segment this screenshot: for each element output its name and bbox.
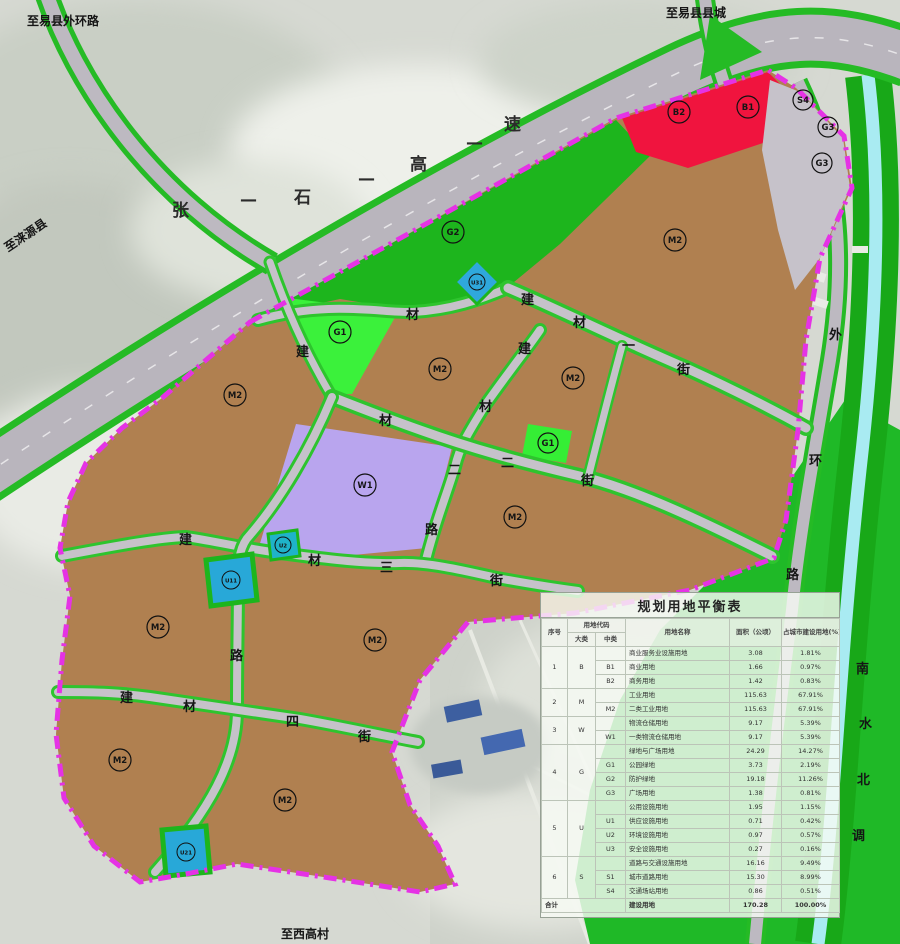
cell-mid: B2: [596, 675, 626, 689]
cell-ser: 1: [542, 647, 568, 689]
cell-pct: 0.57%: [782, 829, 840, 843]
street4-char: 建: [120, 690, 133, 706]
cell-pct: 14.27%: [782, 745, 840, 759]
highway-dash: —: [240, 190, 257, 210]
cell-mid: S4: [596, 885, 626, 899]
cell-name: 广场用地: [626, 787, 730, 801]
canal-name-char: 北: [857, 773, 870, 788]
road2-char: 二: [448, 463, 461, 478]
svg-text:U2: U2: [279, 544, 287, 550]
cell-name: 供应设施用地: [626, 815, 730, 829]
cell-name: 商务用地: [626, 675, 730, 689]
cell-name: 物流仓储用地: [626, 717, 730, 731]
cell-total-name: 建设用地: [626, 899, 730, 913]
cell-name: 交通场站用地: [626, 885, 730, 899]
road1-char: 材: [406, 307, 419, 323]
cell-area: 1.38: [730, 787, 782, 801]
table-row: 2 M 工业用地 115.63 67.91%: [542, 689, 840, 703]
street2-char: 街: [580, 473, 594, 489]
highway-name-char: 张: [172, 201, 190, 221]
cell-area: 1.95: [730, 801, 782, 815]
cell-major: B: [568, 647, 596, 689]
cell-area: 15.30: [730, 871, 782, 885]
edge-label-top-left: 至易县外环路: [27, 13, 100, 28]
canal-name-char: 调: [852, 829, 865, 844]
cell-major: W: [568, 717, 596, 745]
street4-char: 街: [357, 729, 371, 745]
cell-area: 0.71: [730, 815, 782, 829]
svg-text:B1: B1: [742, 103, 754, 113]
highway-name-char: 速: [504, 114, 521, 135]
street3-char: 建: [179, 532, 192, 548]
cell-pct: 0.83%: [782, 675, 840, 689]
col-header-code: 用地代码: [568, 619, 626, 633]
cell-total-area: 170.28: [730, 899, 782, 913]
cell-name: 绿地与广场用地: [626, 745, 730, 759]
svg-text:M2: M2: [151, 623, 165, 633]
cell-pct: 5.39%: [782, 731, 840, 745]
svg-text:G1: G1: [334, 328, 347, 338]
road2-char: 材: [479, 399, 492, 415]
cell-ser: 3: [542, 717, 568, 745]
cell-pct: 67.91%: [782, 703, 840, 717]
cell-pct: 0.51%: [782, 885, 840, 899]
cell-area: 9.17: [730, 731, 782, 745]
ring-road-char: 环: [809, 454, 822, 469]
cell-total-pct: 100.00%: [782, 899, 840, 913]
svg-text:U11: U11: [225, 579, 237, 585]
col-header-ser: 序号: [542, 619, 568, 647]
highway-dash: —: [466, 133, 483, 153]
svg-text:G1: G1: [542, 439, 555, 449]
cell-area: 24.29: [730, 745, 782, 759]
street2-char: 二: [501, 456, 514, 471]
cell-ser: 4: [542, 745, 568, 801]
svg-text:M2: M2: [368, 636, 382, 646]
street1-char: 材: [573, 315, 586, 331]
cell-pct: 0.81%: [782, 787, 840, 801]
ring-road-char: 外: [828, 327, 842, 343]
cell-mid: [596, 689, 626, 703]
cell-mid: W1: [596, 731, 626, 745]
cell-name: 商业用地: [626, 661, 730, 675]
cell-name: 防护绿地: [626, 773, 730, 787]
canal-name-char: 水: [859, 716, 873, 732]
table-row: 3 W 物流仓储用地 9.17 5.39%: [542, 717, 840, 731]
planning-map-page: B2 B1 S4 G3 G3 G2 U31 G1 G1 W1 M2 M2 M2 …: [0, 0, 900, 944]
street4-char: 材: [183, 699, 196, 715]
cell-area: 16.16: [730, 857, 782, 871]
cell-ser: 5: [542, 801, 568, 857]
cell-mid: [596, 647, 626, 661]
cell-major: G: [568, 745, 596, 801]
cell-name: 一类物流仓储用地: [626, 731, 730, 745]
street3-char: 街: [489, 573, 503, 589]
cell-area: 19.18: [730, 773, 782, 787]
nw-arm-char: 建: [296, 344, 309, 360]
cell-ser: 6: [542, 857, 568, 899]
cell-area: 1.66: [730, 661, 782, 675]
street1-char: 一: [622, 339, 635, 354]
cell-name: 公园绿地: [626, 759, 730, 773]
street1-char: 街: [676, 362, 690, 378]
blue-roof-facilities: [410, 697, 550, 793]
cell-mid: M2: [596, 703, 626, 717]
cell-ser: 2: [542, 689, 568, 717]
cell-mid: U1: [596, 815, 626, 829]
cell-pct: 0.42%: [782, 815, 840, 829]
col-header-name: 用地名称: [626, 619, 730, 647]
cell-area: 0.27: [730, 843, 782, 857]
highway-name-char: 石: [293, 188, 311, 208]
street1-char: 建: [521, 292, 534, 308]
cell-total-label: 合计: [542, 899, 626, 913]
cell-mid: U3: [596, 843, 626, 857]
cell-area: 0.86: [730, 885, 782, 899]
table-row: 4 G 绿地与广场用地 24.29 14.27%: [542, 745, 840, 759]
table-title: 规划用地平衡表: [541, 593, 839, 618]
table-row: 6 S 道路与交通设施用地 16.16 9.49%: [542, 857, 840, 871]
cell-pct: 5.39%: [782, 717, 840, 731]
svg-text:G3: G3: [816, 159, 829, 169]
street3-char: 材: [308, 553, 321, 569]
cell-pct: 2.19%: [782, 759, 840, 773]
cell-pct: 67.91%: [782, 689, 840, 703]
cell-mid: [596, 857, 626, 871]
cell-mid: S1: [596, 871, 626, 885]
cell-mid: G1: [596, 759, 626, 773]
svg-text:G3: G3: [822, 123, 835, 133]
table-header-row: 序号 用地代码 用地名称 面积（公顷） 占城市建设用地(%): [542, 619, 840, 633]
col-header-pct: 占城市建设用地(%): [782, 619, 840, 647]
cell-name: 环境设施用地: [626, 829, 730, 843]
svg-text:G2: G2: [447, 228, 460, 238]
cell-pct: 0.97%: [782, 661, 840, 675]
cell-major: U: [568, 801, 596, 857]
street3-char: 三: [380, 561, 393, 576]
cell-name: 安全设施用地: [626, 843, 730, 857]
svg-text:M2: M2: [278, 796, 292, 806]
svg-text:M2: M2: [566, 374, 580, 384]
svg-text:M2: M2: [228, 391, 242, 401]
land-use-balance-table: 规划用地平衡表 序号 用地代码 用地名称 面积（公顷） 占城市建设用地(%) 大…: [540, 592, 840, 918]
svg-text:S4: S4: [797, 96, 809, 106]
svg-text:M2: M2: [668, 236, 682, 246]
highway-dash: —: [358, 169, 375, 189]
road2-char: 路: [425, 522, 439, 538]
cell-name: 城市道路用地: [626, 871, 730, 885]
cell-pct: 1.81%: [782, 647, 840, 661]
cell-area: 3.73: [730, 759, 782, 773]
svg-text:U21: U21: [180, 851, 192, 857]
west-road-char: 路: [230, 648, 244, 664]
cell-name: 公用设施用地: [626, 801, 730, 815]
cell-name: 二类工业用地: [626, 703, 730, 717]
cell-mid: G2: [596, 773, 626, 787]
svg-text:M2: M2: [508, 513, 522, 523]
cell-pct: 9.49%: [782, 857, 840, 871]
cell-pct: 11.26%: [782, 773, 840, 787]
cell-major: S: [568, 857, 596, 899]
cell-area: 9.17: [730, 717, 782, 731]
col-header-mid: 中类: [596, 633, 626, 647]
cell-mid: B1: [596, 661, 626, 675]
road2-char: 建: [518, 341, 531, 357]
svg-text:B2: B2: [673, 108, 685, 118]
cell-pct: 8.99%: [782, 871, 840, 885]
cell-mid: [596, 745, 626, 759]
svg-text:W1: W1: [357, 481, 372, 491]
svg-text:M2: M2: [433, 365, 447, 375]
cell-pct: 1.15%: [782, 801, 840, 815]
cell-pct: 0.16%: [782, 843, 840, 857]
canal-name-char: 南: [856, 661, 869, 677]
cell-area: 115.63: [730, 703, 782, 717]
cell-mid: U2: [596, 829, 626, 843]
col-header-area: 面积（公顷）: [730, 619, 782, 647]
cell-mid: [596, 717, 626, 731]
svg-text:U31: U31: [471, 281, 483, 287]
street4-char: 四: [286, 715, 299, 730]
cell-mid: G3: [596, 787, 626, 801]
balance-table: 序号 用地代码 用地名称 面积（公顷） 占城市建设用地(%) 大类 中类 1 B…: [541, 618, 840, 913]
cell-major: M: [568, 689, 596, 717]
cell-area: 1.42: [730, 675, 782, 689]
cell-area: 0.97: [730, 829, 782, 843]
cell-name: 道路与交通设施用地: [626, 857, 730, 871]
table-total-row: 合计 建设用地 170.28 100.00%: [542, 899, 840, 913]
cell-name: 工业用地: [626, 689, 730, 703]
highway-name-char: 高: [410, 154, 427, 175]
cell-name: 商业服务业设施用地: [626, 647, 730, 661]
cell-area: 3.08: [730, 647, 782, 661]
table-row: 5 U 公用设施用地 1.95 1.15%: [542, 801, 840, 815]
street2-char: 材: [379, 413, 392, 429]
cell-area: 115.63: [730, 689, 782, 703]
ring-road-char: 路: [786, 567, 800, 583]
table-row: 1 B 商业服务业设施用地 3.08 1.81%: [542, 647, 840, 661]
edge-label-top-right: 至易县县城: [666, 5, 726, 20]
col-header-major: 大类: [568, 633, 596, 647]
svg-text:M2: M2: [113, 756, 127, 766]
cell-mid: [596, 801, 626, 815]
edge-label-bottom: 至西高村: [281, 926, 329, 941]
